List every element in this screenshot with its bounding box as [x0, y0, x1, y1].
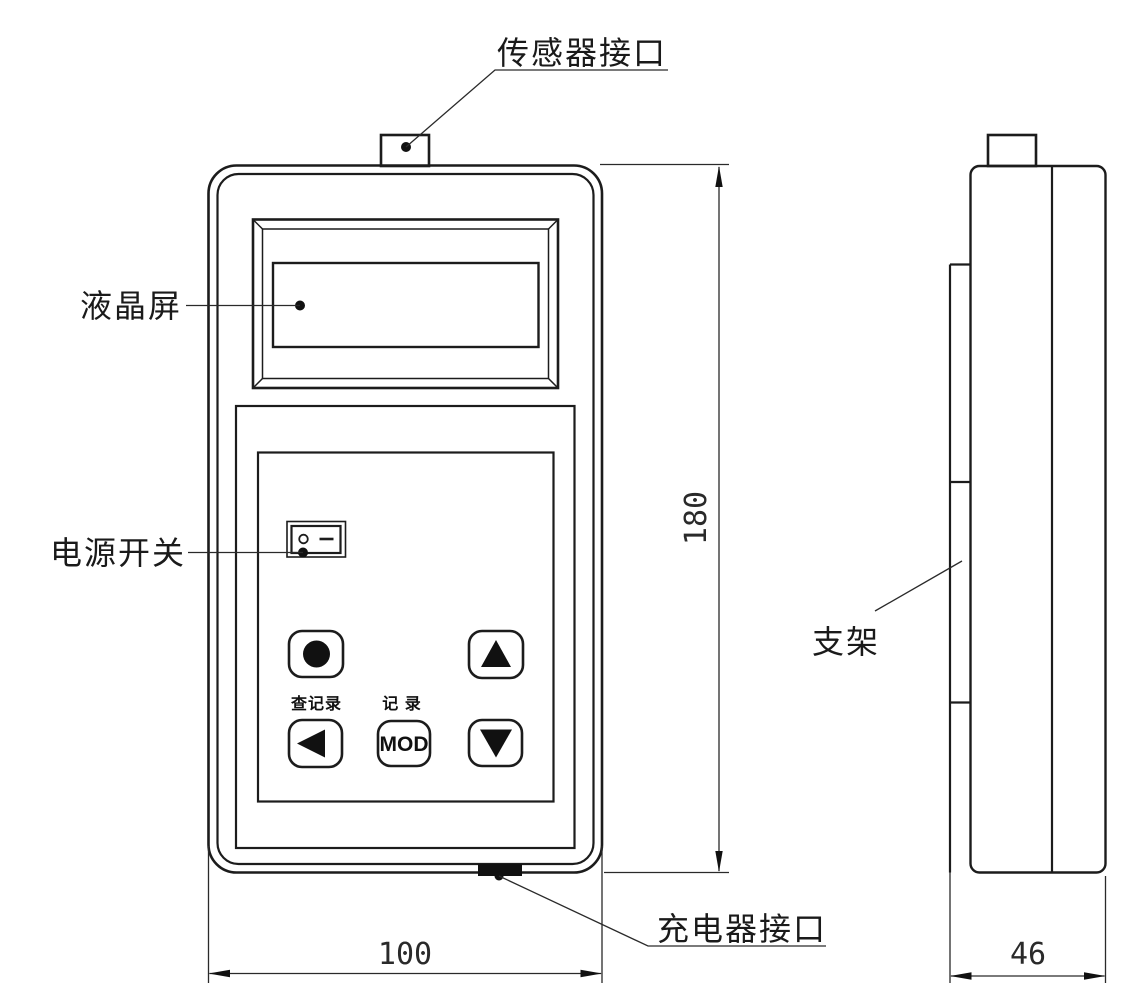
view-record-label: 查记录 [291, 694, 342, 713]
bezel-corner-tr [549, 220, 559, 230]
dim46-arrow-left [950, 972, 972, 979]
dim100-arrow-left [209, 970, 231, 977]
left-arrow-icon [297, 730, 325, 758]
switch-off-symbol [299, 535, 308, 544]
side-body [971, 166, 1106, 873]
side-sensor-connector [988, 135, 1036, 166]
dim-width-100: 100 [209, 846, 603, 983]
dim100-arrow-right [581, 970, 603, 977]
dim180-arrow-top [715, 166, 722, 187]
charger-port-label: 充电器接口 [657, 911, 827, 947]
lcd-display-window [273, 263, 539, 347]
dim-depth-value: 46 [1010, 937, 1046, 972]
bezel-corner-bl [253, 379, 263, 389]
sensor-leader-line [406, 70, 668, 147]
front-view: 查记录 记 录 MOD [209, 135, 603, 876]
bracket [950, 265, 971, 873]
dim46-arrow-right [1084, 972, 1106, 979]
dim-height-180: 180 [600, 165, 729, 873]
up-arrow-icon [481, 640, 511, 667]
record-dot-icon [303, 641, 330, 668]
callouts: 传感器接口 液晶屏 电源开关 充电器接口 支架 [50, 35, 962, 947]
record-label: 记 录 [382, 695, 421, 713]
dim-height-value: 180 [679, 491, 714, 545]
dim180-arrow-bottom [715, 851, 722, 872]
mod-button-label: MOD [380, 733, 429, 756]
keypad-panel-outer [236, 406, 575, 848]
keypad-buttons: 查记录 记 录 MOD [289, 631, 523, 767]
side-view [950, 135, 1106, 873]
bezel-corner-br [549, 379, 559, 389]
drawing-canvas: 查记录 记 录 MOD 传感器接口 [0, 0, 1131, 1004]
dim-depth-46: 46 [950, 873, 1106, 984]
lcd-screen-label: 液晶屏 [80, 288, 182, 324]
instrument-dimension-drawing: 查记录 记 录 MOD 传感器接口 [0, 0, 1131, 1004]
power-switch-label: 电源开关 [50, 535, 186, 571]
down-arrow-icon [480, 730, 512, 758]
dim-width-value: 100 [378, 937, 432, 972]
power-switch [287, 522, 346, 558]
sensor-port-label: 传感器接口 [497, 35, 667, 71]
screen-bezel-inner [263, 229, 549, 379]
bracket-label: 支架 [812, 624, 880, 660]
bezel-corner-tl [253, 220, 263, 230]
